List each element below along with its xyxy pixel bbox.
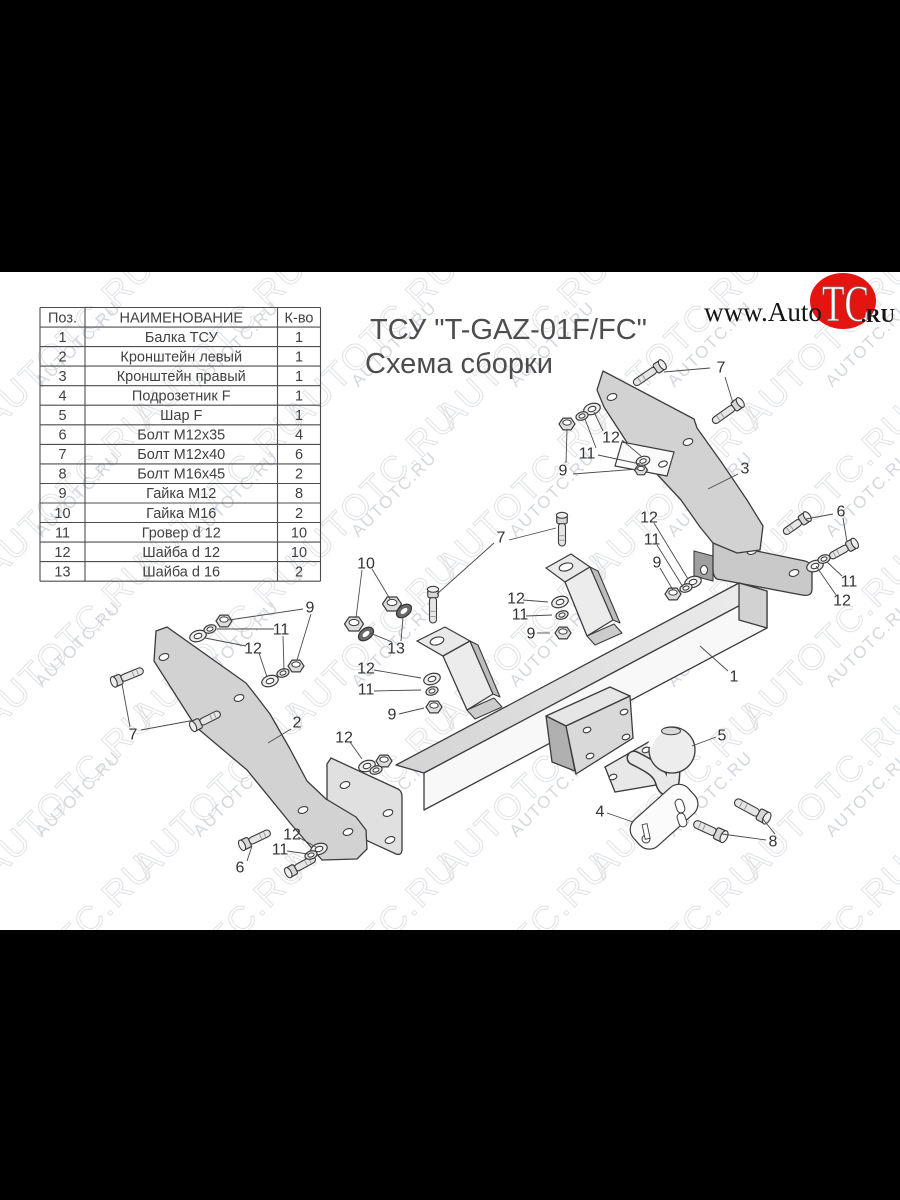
svg-text:Кронштейн левый: Кронштейн левый bbox=[120, 349, 242, 365]
svg-text:Шайба d 12: Шайба d 12 bbox=[142, 545, 220, 561]
svg-text:7: 7 bbox=[497, 530, 506, 547]
svg-text:1: 1 bbox=[295, 330, 303, 346]
svg-text:11: 11 bbox=[512, 607, 529, 624]
svg-text:1: 1 bbox=[295, 389, 303, 405]
svg-text:1: 1 bbox=[295, 349, 303, 365]
svg-text:2: 2 bbox=[295, 506, 303, 522]
svg-text:5: 5 bbox=[718, 728, 727, 745]
svg-text:Шайба d 16: Шайба d 16 bbox=[142, 564, 220, 580]
svg-text:9: 9 bbox=[58, 486, 66, 502]
svg-text:4: 4 bbox=[295, 428, 303, 444]
svg-text:9: 9 bbox=[559, 463, 568, 480]
svg-text:4: 4 bbox=[58, 389, 66, 405]
svg-text:Гровер d 12: Гровер d 12 bbox=[142, 525, 221, 541]
svg-text:10: 10 bbox=[357, 556, 375, 573]
svg-text:1: 1 bbox=[58, 330, 66, 346]
svg-text:12: 12 bbox=[640, 510, 658, 527]
svg-text:К-во: К-во bbox=[285, 310, 314, 326]
svg-text:9: 9 bbox=[653, 555, 662, 572]
svg-text:7: 7 bbox=[58, 447, 66, 463]
svg-text:11: 11 bbox=[273, 622, 290, 639]
svg-text:12: 12 bbox=[357, 661, 375, 678]
svg-text:3: 3 bbox=[741, 461, 750, 478]
svg-text:10: 10 bbox=[291, 525, 307, 541]
svg-text:6: 6 bbox=[837, 504, 846, 521]
svg-text:2: 2 bbox=[293, 715, 302, 732]
svg-text:Болт М16х45: Болт М16х45 bbox=[137, 467, 225, 483]
svg-text:Поз.: Поз. bbox=[48, 310, 77, 326]
svg-text:9: 9 bbox=[306, 600, 315, 617]
svg-text:11: 11 bbox=[841, 574, 858, 591]
svg-text:9: 9 bbox=[388, 707, 397, 724]
svg-text:11: 11 bbox=[358, 682, 375, 699]
svg-text:7: 7 bbox=[129, 727, 138, 744]
svg-text:10: 10 bbox=[54, 506, 70, 522]
svg-text:Болт М12х35: Болт М12х35 bbox=[137, 428, 225, 444]
svg-text:1: 1 bbox=[295, 408, 303, 424]
svg-text:11: 11 bbox=[55, 525, 70, 541]
svg-text:Гайка М12: Гайка М12 bbox=[146, 486, 216, 502]
svg-text:12: 12 bbox=[602, 430, 620, 447]
svg-text:6: 6 bbox=[295, 447, 303, 463]
svg-text:13: 13 bbox=[387, 641, 405, 658]
svg-text:Гайка М16: Гайка М16 bbox=[146, 506, 216, 522]
svg-text:12: 12 bbox=[244, 641, 262, 658]
svg-text:2: 2 bbox=[295, 467, 303, 483]
svg-text:8: 8 bbox=[295, 486, 303, 502]
svg-text:13: 13 bbox=[54, 564, 70, 580]
svg-text:9: 9 bbox=[527, 626, 536, 643]
svg-text:8: 8 bbox=[58, 467, 66, 483]
svg-text:2: 2 bbox=[58, 349, 66, 365]
svg-text:6: 6 bbox=[236, 860, 245, 877]
svg-text:4: 4 bbox=[596, 804, 605, 821]
svg-text:1: 1 bbox=[295, 369, 303, 385]
svg-text:1: 1 bbox=[730, 669, 739, 686]
svg-text:12: 12 bbox=[507, 591, 525, 608]
svg-text:11: 11 bbox=[644, 532, 661, 549]
svg-text:Подрозетник F: Подрозетник F bbox=[132, 389, 231, 405]
svg-text:НАИМЕНОВАНИЕ: НАИМЕНОВАНИЕ bbox=[120, 310, 244, 326]
svg-text:11: 11 bbox=[272, 842, 289, 859]
svg-text:5: 5 bbox=[58, 408, 66, 424]
svg-text:Шар F: Шар F bbox=[160, 408, 202, 424]
svg-text:Балка ТСУ: Балка ТСУ bbox=[145, 330, 219, 346]
svg-text:www.Auto: www.Auto bbox=[704, 297, 822, 327]
svg-text:12: 12 bbox=[54, 545, 70, 561]
svg-text:11: 11 bbox=[579, 446, 596, 463]
svg-text:3: 3 bbox=[58, 369, 66, 385]
svg-text:Схема сборки: Схема сборки bbox=[365, 348, 553, 380]
svg-text:2: 2 bbox=[295, 564, 303, 580]
svg-text:7: 7 bbox=[717, 360, 726, 377]
svg-text:6: 6 bbox=[58, 428, 66, 444]
svg-text:.RU: .RU bbox=[861, 305, 895, 327]
svg-text:12: 12 bbox=[833, 593, 851, 610]
svg-text:10: 10 bbox=[291, 545, 307, 561]
svg-text:Болт М12х40: Болт М12х40 bbox=[137, 447, 225, 463]
svg-text:ТСУ "T-GAZ-01F/FC": ТСУ "T-GAZ-01F/FC" bbox=[370, 314, 647, 346]
svg-text:Кронштейн правый: Кронштейн правый bbox=[117, 369, 246, 385]
svg-text:8: 8 bbox=[769, 834, 778, 851]
svg-text:12: 12 bbox=[335, 730, 353, 747]
